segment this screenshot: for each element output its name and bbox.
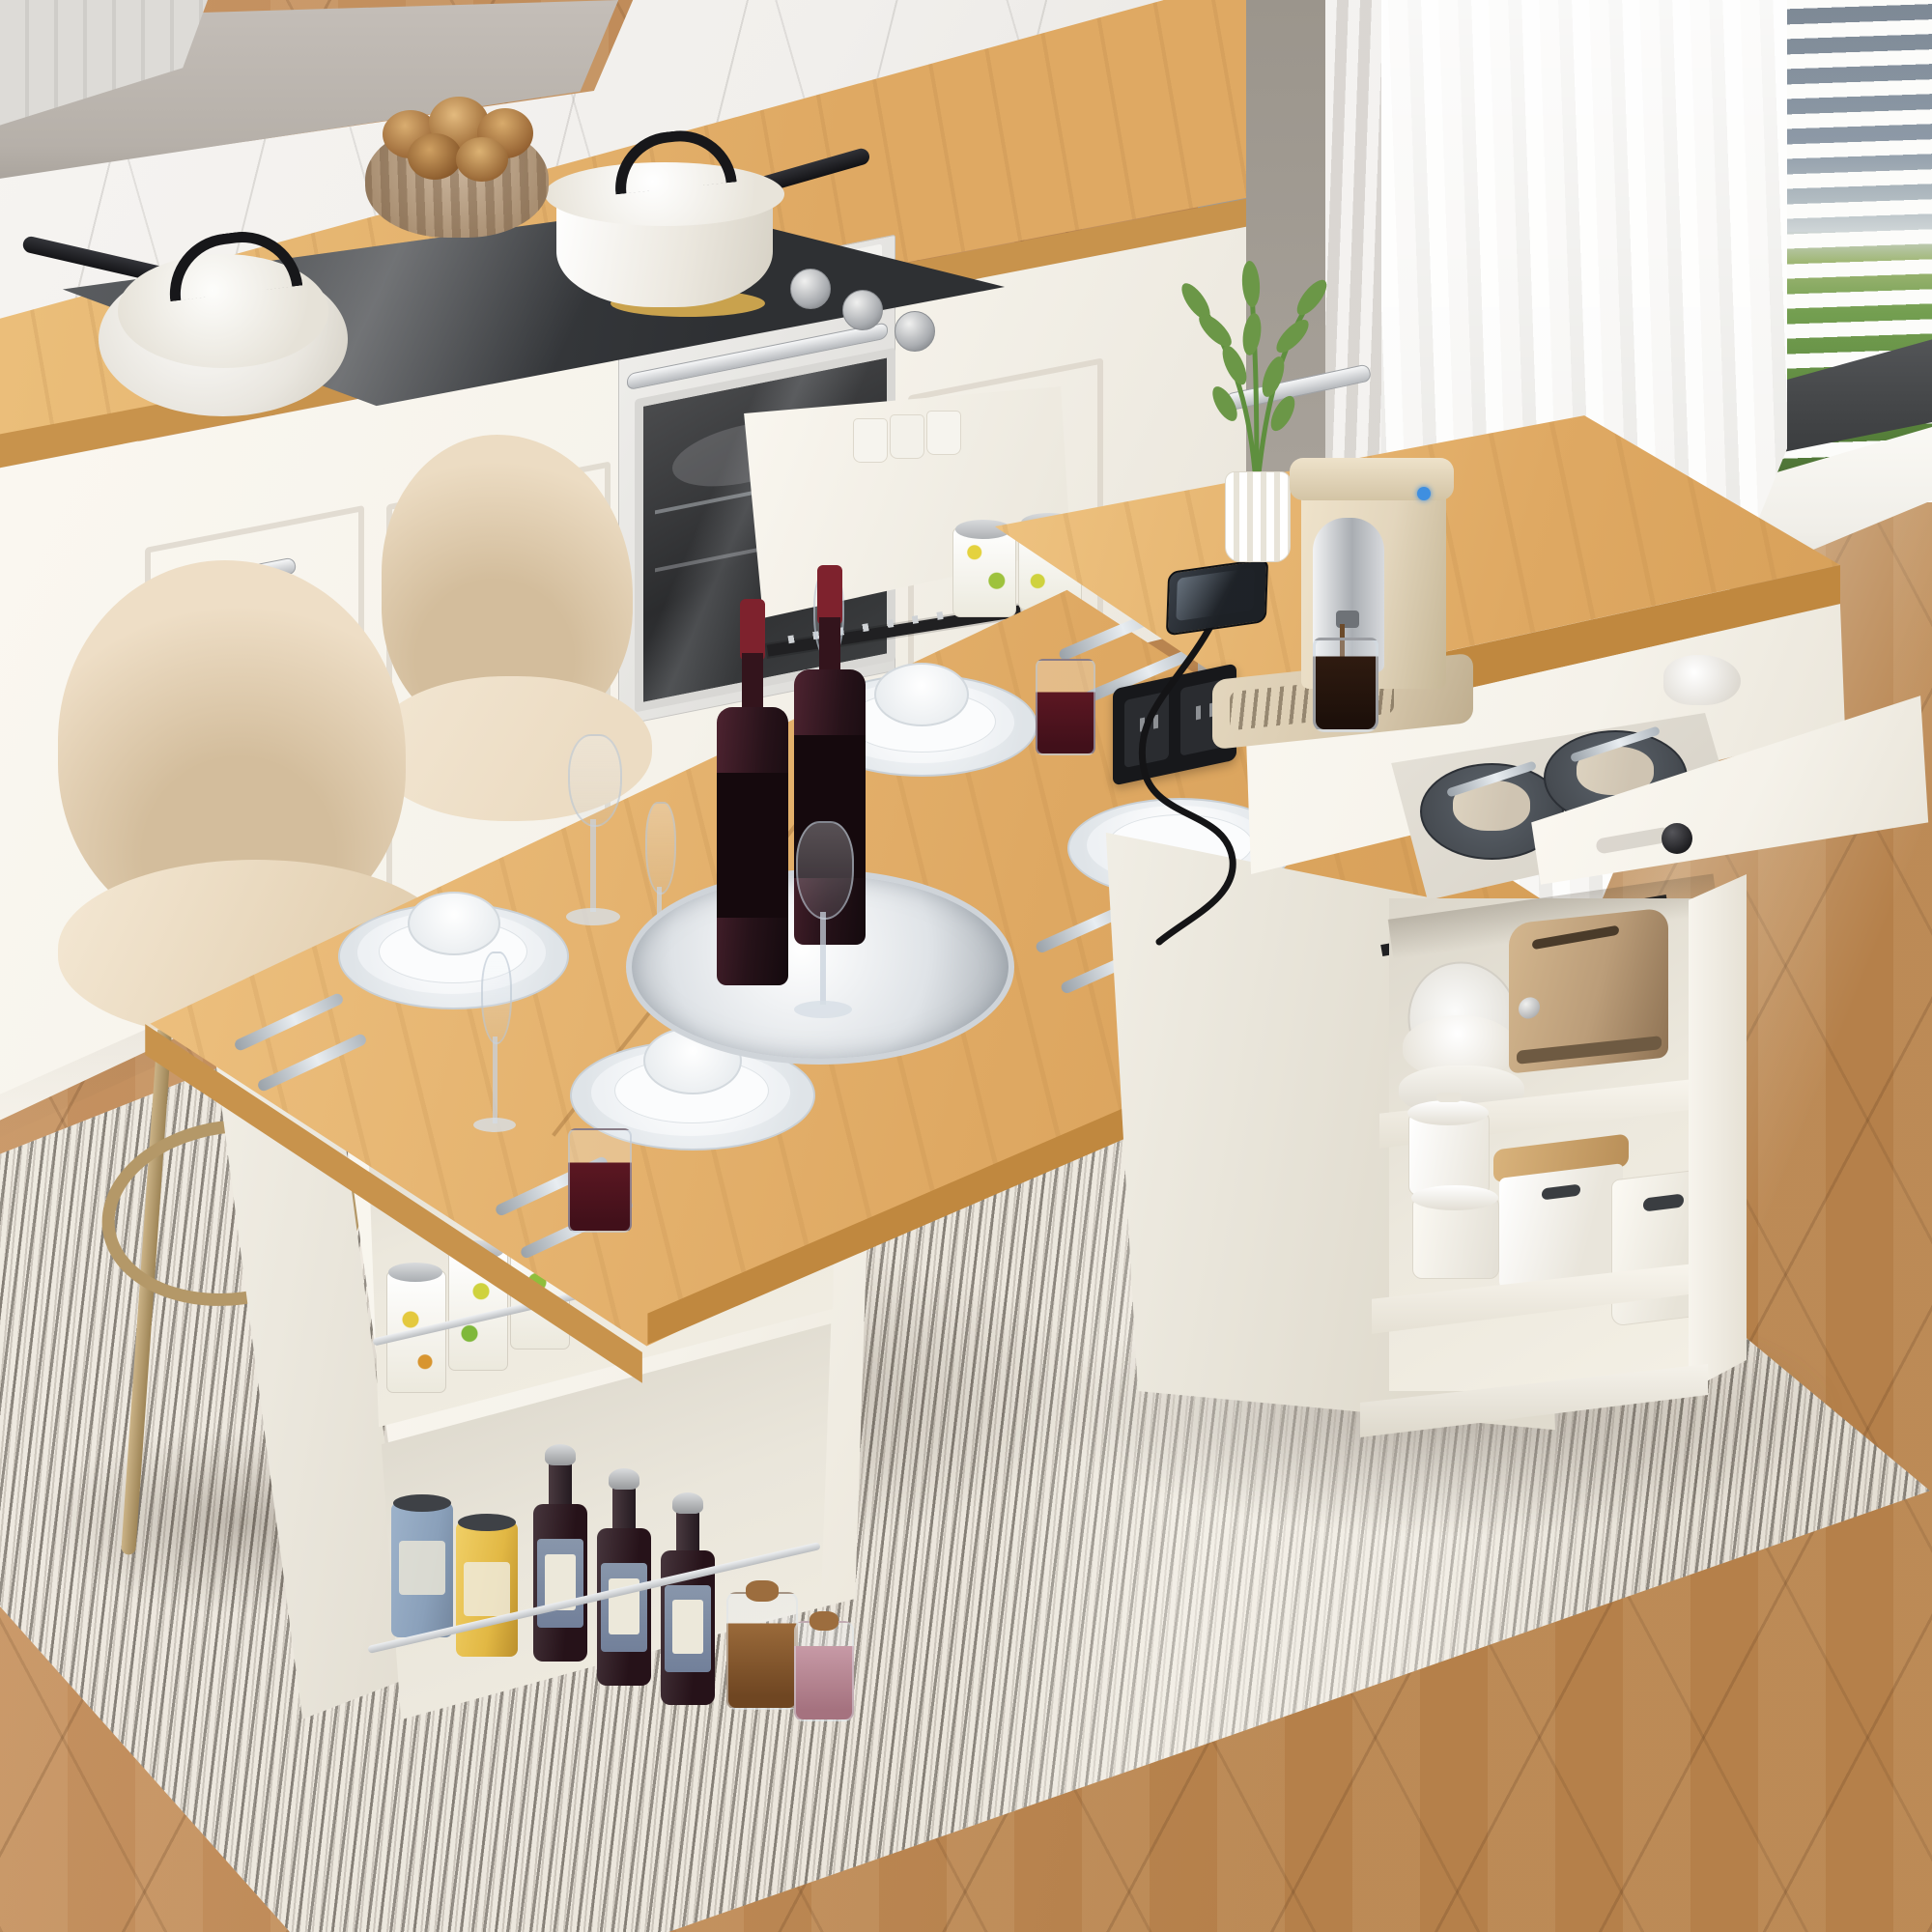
toaster-lever xyxy=(1519,996,1540,1019)
glass-foot xyxy=(473,1118,516,1132)
storage-cup xyxy=(853,418,888,463)
bread-roll xyxy=(456,137,508,182)
can-lid xyxy=(388,1263,442,1282)
crumpled-napkin xyxy=(1663,655,1741,705)
yellow-tin xyxy=(456,1521,518,1657)
tin-lid xyxy=(393,1494,451,1512)
spice-jar-pink xyxy=(794,1621,854,1721)
bowl xyxy=(408,892,500,955)
red-wine-tumbler xyxy=(568,1128,632,1233)
sauce-bottle xyxy=(533,1454,587,1662)
toaster-slot xyxy=(1532,925,1619,951)
bottle-cap-silver xyxy=(545,1444,576,1465)
jar-cork xyxy=(746,1580,779,1602)
storage-cup xyxy=(926,411,961,455)
pullout-can xyxy=(952,526,1016,617)
bottle-label xyxy=(665,1585,711,1672)
bottle-label xyxy=(601,1563,647,1652)
glass-stem xyxy=(493,1037,497,1123)
machine-blue-light xyxy=(1417,487,1431,500)
wine-glass xyxy=(773,821,879,1043)
glass-bowl xyxy=(481,952,512,1044)
pot-lid xyxy=(1407,1100,1489,1125)
glass-foot xyxy=(794,1001,852,1018)
bottle-label xyxy=(537,1539,583,1628)
bread-roll xyxy=(408,133,462,180)
glass-bowl xyxy=(645,802,676,895)
pot-lid xyxy=(1411,1185,1498,1210)
espresso-glass xyxy=(1313,638,1378,732)
blue-tin xyxy=(391,1502,453,1637)
glass-stem xyxy=(590,819,596,912)
coffee-machine xyxy=(1212,454,1502,753)
bottle-cap-silver xyxy=(609,1468,639,1490)
lidded-pot xyxy=(1408,1111,1490,1196)
glass-foot xyxy=(566,908,620,925)
island-side-panel xyxy=(1689,874,1747,1391)
bread-basket xyxy=(365,95,549,244)
bottle-label-inner xyxy=(672,1600,703,1654)
drawer-knob xyxy=(1662,823,1692,854)
bin-handle-slot xyxy=(1542,1184,1580,1201)
bottle-cap-silver xyxy=(672,1492,703,1514)
cooktop-knob xyxy=(895,311,935,352)
jar-cork xyxy=(810,1611,838,1631)
toaster xyxy=(1509,907,1668,1073)
bottle-cap xyxy=(740,599,765,661)
toaster-base xyxy=(1517,1036,1662,1065)
saucepan xyxy=(522,124,879,317)
place-setting xyxy=(338,865,570,1009)
kitchen-scene xyxy=(0,0,1932,1932)
spice-jar-brown xyxy=(726,1592,798,1710)
saute-pan xyxy=(19,217,367,420)
bowl xyxy=(874,663,969,726)
glass-bowl xyxy=(568,734,622,827)
glass-stem xyxy=(820,912,826,1005)
bottle-cap xyxy=(817,565,842,625)
storage-cup xyxy=(890,414,924,459)
tin-lid xyxy=(458,1514,516,1531)
lidded-pot xyxy=(1412,1196,1499,1279)
basket-handle-slot xyxy=(1643,1193,1684,1211)
tin-label xyxy=(464,1562,510,1616)
sauce-bottle xyxy=(661,1502,715,1705)
champagne-flute xyxy=(462,952,529,1159)
tin-label xyxy=(399,1541,445,1595)
pot-handle xyxy=(1436,1093,1462,1102)
glass-bowl xyxy=(796,821,854,920)
